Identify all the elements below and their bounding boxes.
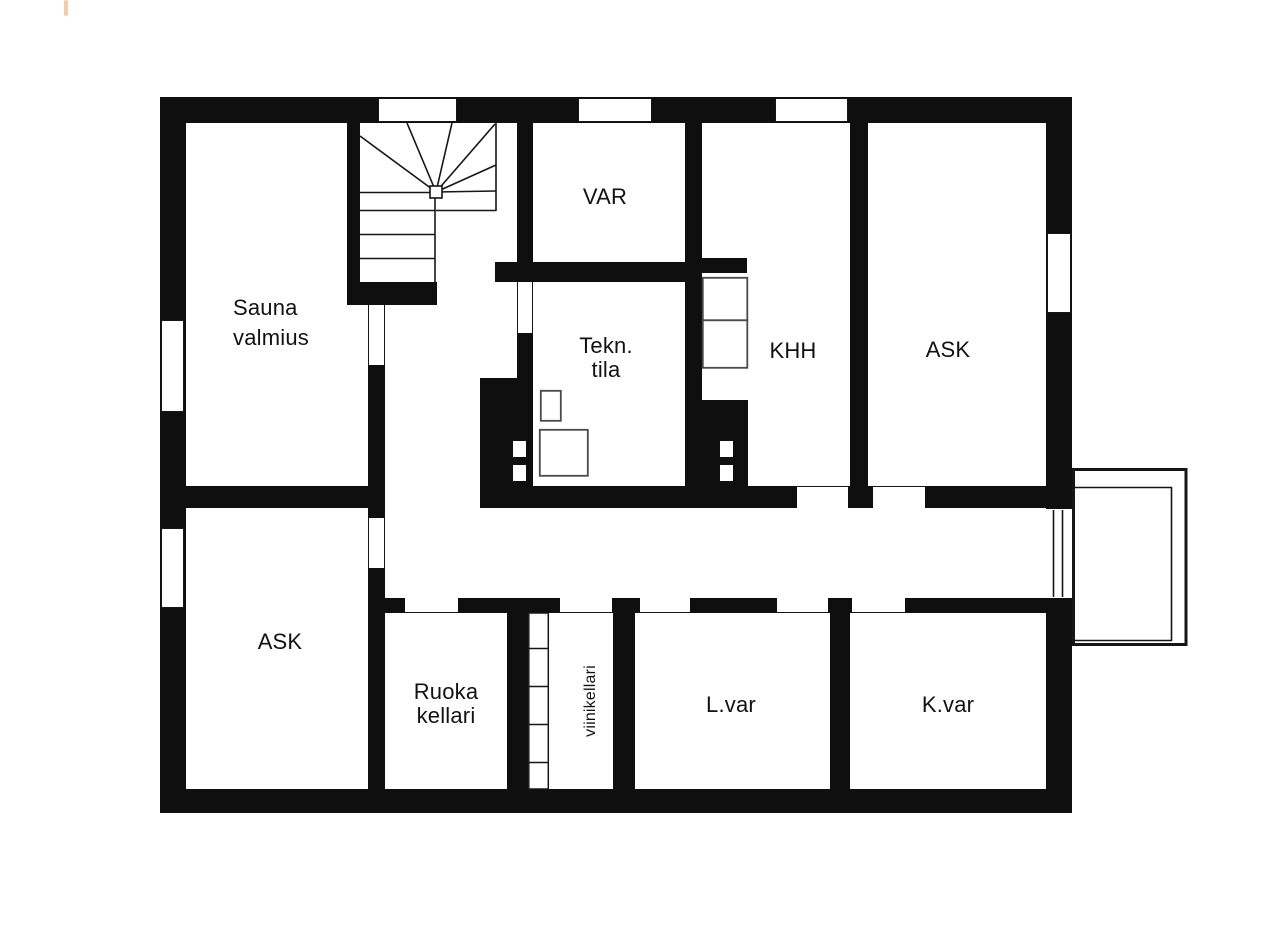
window-left-sauna <box>161 320 184 412</box>
wall-stair-bottom <box>347 282 437 305</box>
window-right-ask <box>1047 233 1071 313</box>
room-label-ruoka-kellari: Ruoka kellari <box>414 680 479 728</box>
wall-left <box>160 97 186 813</box>
wall-var-left <box>517 123 533 265</box>
door-ask-upper <box>873 486 925 508</box>
wall-block-right-of-tekn <box>685 400 748 508</box>
wall-khh-stub <box>700 258 747 273</box>
window-top-stairs <box>378 98 457 122</box>
wall-bottom <box>160 789 1072 813</box>
tekn-equipment <box>540 391 588 476</box>
vent-square <box>720 465 733 481</box>
room-label-sauna-valmius: Sauna valmius <box>233 293 309 353</box>
window-top-khh <box>775 98 848 122</box>
room-label-tekn-tila: Tekn. tila <box>579 334 633 382</box>
door-kvar <box>852 598 905 613</box>
wine-shelf <box>529 613 549 789</box>
door-corridor-exit <box>1046 509 1072 598</box>
khh-cabinet <box>703 278 748 368</box>
entrance-porch <box>1073 470 1186 645</box>
door-khh <box>797 486 848 508</box>
window-top-var <box>578 98 652 122</box>
wall-lvar-kvar-divider <box>830 613 850 789</box>
wall-right <box>1046 97 1072 813</box>
wall-viini-lvar-divider <box>613 613 635 789</box>
door-lvar-west <box>640 598 690 613</box>
room-label-l-var: L.var <box>706 693 756 717</box>
door-viinikellari <box>560 598 612 613</box>
wall-stairwell-left <box>347 123 360 305</box>
window-left-ask <box>161 528 184 608</box>
door-ruoka-kellari <box>405 598 458 613</box>
wall-corridor-top <box>480 486 1048 508</box>
vent-square <box>720 441 733 457</box>
room-label-k-var: K.var <box>922 693 974 717</box>
room-label-var: VAR <box>583 185 627 209</box>
room-label-ask-upper: ASK <box>926 338 971 362</box>
wall-corridor-bottom <box>368 598 1048 613</box>
vent-square <box>513 441 526 457</box>
room-label-viinikellari: viinikellari <box>583 665 599 737</box>
room-label-khh: KHH <box>769 339 816 363</box>
room-label-ask-lower: ASK <box>258 630 303 654</box>
door-sauna-hall <box>368 305 385 365</box>
door-lvar-east <box>777 598 828 613</box>
door-ask-lower <box>368 518 385 568</box>
door-tekn-tila <box>517 282 533 333</box>
wall-sauna-ask-divider <box>160 486 385 508</box>
wall-ruoka-left <box>368 613 385 789</box>
page-edge-mark <box>64 0 68 16</box>
wall-ruoka-viini-divider <box>507 613 528 789</box>
floor-plan: Sauna valmius VAR Tekn. tila KHH ASK ASK… <box>0 0 1280 935</box>
vent-square <box>513 465 526 481</box>
wall-khh-ask-divider <box>850 123 868 508</box>
stair-newel <box>430 186 442 198</box>
wall-var-bottom <box>495 262 702 282</box>
stairs <box>360 123 496 282</box>
